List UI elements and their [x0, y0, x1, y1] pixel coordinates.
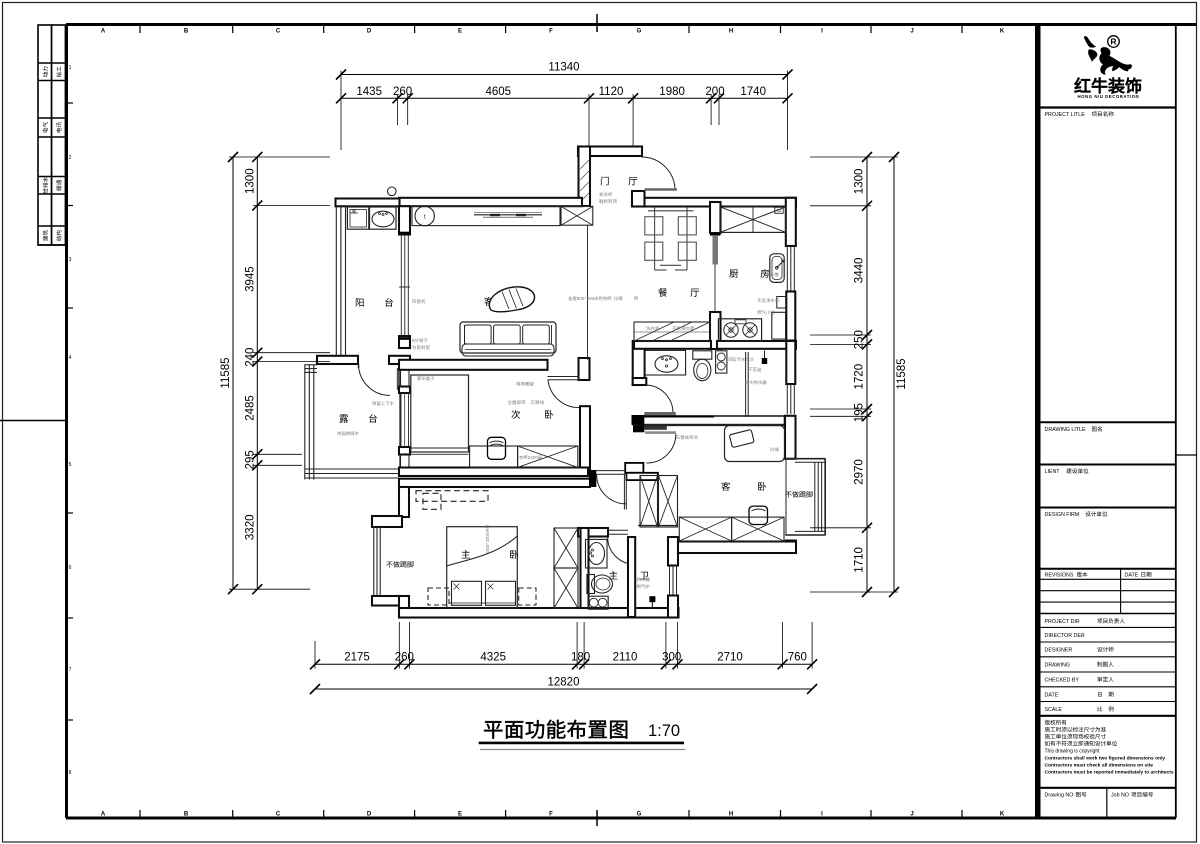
svg-text:R: R [1110, 37, 1116, 47]
svg-text:4325: 4325 [480, 652, 506, 664]
svg-text:2110: 2110 [613, 652, 638, 664]
svg-text:J: J [910, 29, 913, 35]
svg-text:250: 250 [854, 330, 866, 349]
svg-text:C: C [276, 812, 281, 818]
svg-text:260: 260 [395, 652, 414, 664]
svg-text:Contractors shall work two fig: Contractors shall work two figured dimen… [1045, 756, 1166, 762]
svg-text:240: 240 [245, 348, 257, 367]
svg-text:K: K [1000, 29, 1005, 35]
svg-text:300: 300 [662, 652, 681, 664]
svg-text:B: B [184, 29, 189, 35]
svg-text:5: 5 [69, 462, 72, 468]
svg-text:3945: 3945 [245, 266, 257, 292]
svg-text:A: A [101, 812, 106, 818]
svg-text:G: G [637, 29, 642, 35]
svg-text:F: F [549, 812, 553, 818]
svg-text:Job NO: Job NO [1111, 793, 1129, 799]
svg-text:1300: 1300 [854, 169, 866, 195]
svg-text:Contractors must check all dim: Contractors must check all dimensions on… [1045, 763, 1154, 769]
svg-text:E: E [458, 29, 462, 35]
svg-text:4: 4 [69, 355, 72, 361]
svg-text:G: G [637, 812, 642, 818]
svg-text:4605: 4605 [486, 86, 512, 98]
svg-text:Drawing NO: Drawing NO [1045, 793, 1074, 799]
svg-text:F: F [549, 29, 553, 35]
svg-text:760: 760 [788, 652, 807, 664]
svg-text:DRAWING: DRAWING [1045, 662, 1070, 668]
svg-text:1300: 1300 [245, 168, 257, 194]
svg-text:E: E [458, 812, 462, 818]
svg-text:1: 1 [69, 65, 72, 71]
svg-text:B: B [184, 812, 189, 818]
svg-text:J: J [910, 812, 913, 818]
svg-text:PROJECT LITLE: PROJECT LITLE [1045, 112, 1086, 118]
svg-text:PROJECT DIR: PROJECT DIR [1045, 619, 1080, 625]
svg-text:2: 2 [69, 155, 72, 161]
svg-text:SCALE: SCALE [1045, 707, 1063, 713]
svg-text:REVISIONS: REVISIONS [1045, 573, 1074, 579]
svg-text:DESIGNER: DESIGNER [1045, 648, 1073, 654]
svg-text:260: 260 [393, 86, 412, 98]
svg-text:D: D [367, 29, 372, 35]
svg-text:11585: 11585 [896, 358, 908, 389]
svg-text:3: 3 [69, 257, 72, 263]
svg-text:3440: 3440 [854, 258, 866, 284]
svg-text:11340: 11340 [548, 62, 579, 74]
svg-text:295: 295 [245, 450, 257, 469]
svg-text:DATE: DATE [1125, 573, 1139, 579]
svg-text:DATE: DATE [1045, 692, 1059, 698]
svg-text:C: C [276, 29, 281, 35]
svg-text:DESIGN FIRM: DESIGN FIRM [1045, 512, 1080, 518]
svg-text:12820: 12820 [548, 677, 580, 689]
svg-text:1:70: 1:70 [648, 722, 680, 740]
svg-text:7: 7 [69, 667, 72, 673]
svg-text:195: 195 [854, 403, 866, 422]
svg-text:11585: 11585 [220, 357, 232, 388]
svg-text:1435: 1435 [356, 86, 382, 98]
svg-text:8: 8 [69, 770, 72, 776]
svg-text:K: K [1000, 812, 1005, 818]
svg-text:D: D [367, 812, 372, 818]
svg-text:2485: 2485 [245, 395, 257, 421]
svg-text:1740: 1740 [740, 86, 766, 98]
svg-text:1120: 1120 [599, 86, 624, 98]
svg-text:H: H [729, 29, 733, 35]
svg-text:A: A [101, 29, 106, 35]
svg-text:1720: 1720 [854, 364, 866, 390]
svg-text:200: 200 [705, 86, 724, 98]
svg-text:LIENT: LIENT [1045, 469, 1061, 475]
svg-text:DRAWING LITLE: DRAWING LITLE [1045, 427, 1086, 433]
svg-text:Contractors must be reported i: Contractors must be reported immediately… [1045, 770, 1174, 776]
svg-text:2710: 2710 [717, 652, 743, 664]
svg-text:180: 180 [571, 652, 590, 664]
svg-text:CHECKED BY: CHECKED BY [1045, 678, 1080, 684]
svg-text:6: 6 [69, 565, 72, 571]
svg-text:DIRECTOR DER: DIRECTOR DER [1045, 633, 1085, 639]
svg-text:This drawing is copyright: This drawing is copyright [1045, 749, 1101, 755]
svg-text:HONG NIU DECORATION: HONG NIU DECORATION [1078, 94, 1140, 99]
svg-text:2175: 2175 [344, 652, 370, 664]
svg-text:1980: 1980 [659, 86, 685, 98]
svg-text:3320: 3320 [245, 515, 257, 541]
svg-text:1710: 1710 [854, 547, 866, 573]
svg-text:02: 02 [776, 208, 782, 213]
svg-text:H: H [729, 812, 733, 818]
svg-text:2970: 2970 [854, 459, 866, 485]
